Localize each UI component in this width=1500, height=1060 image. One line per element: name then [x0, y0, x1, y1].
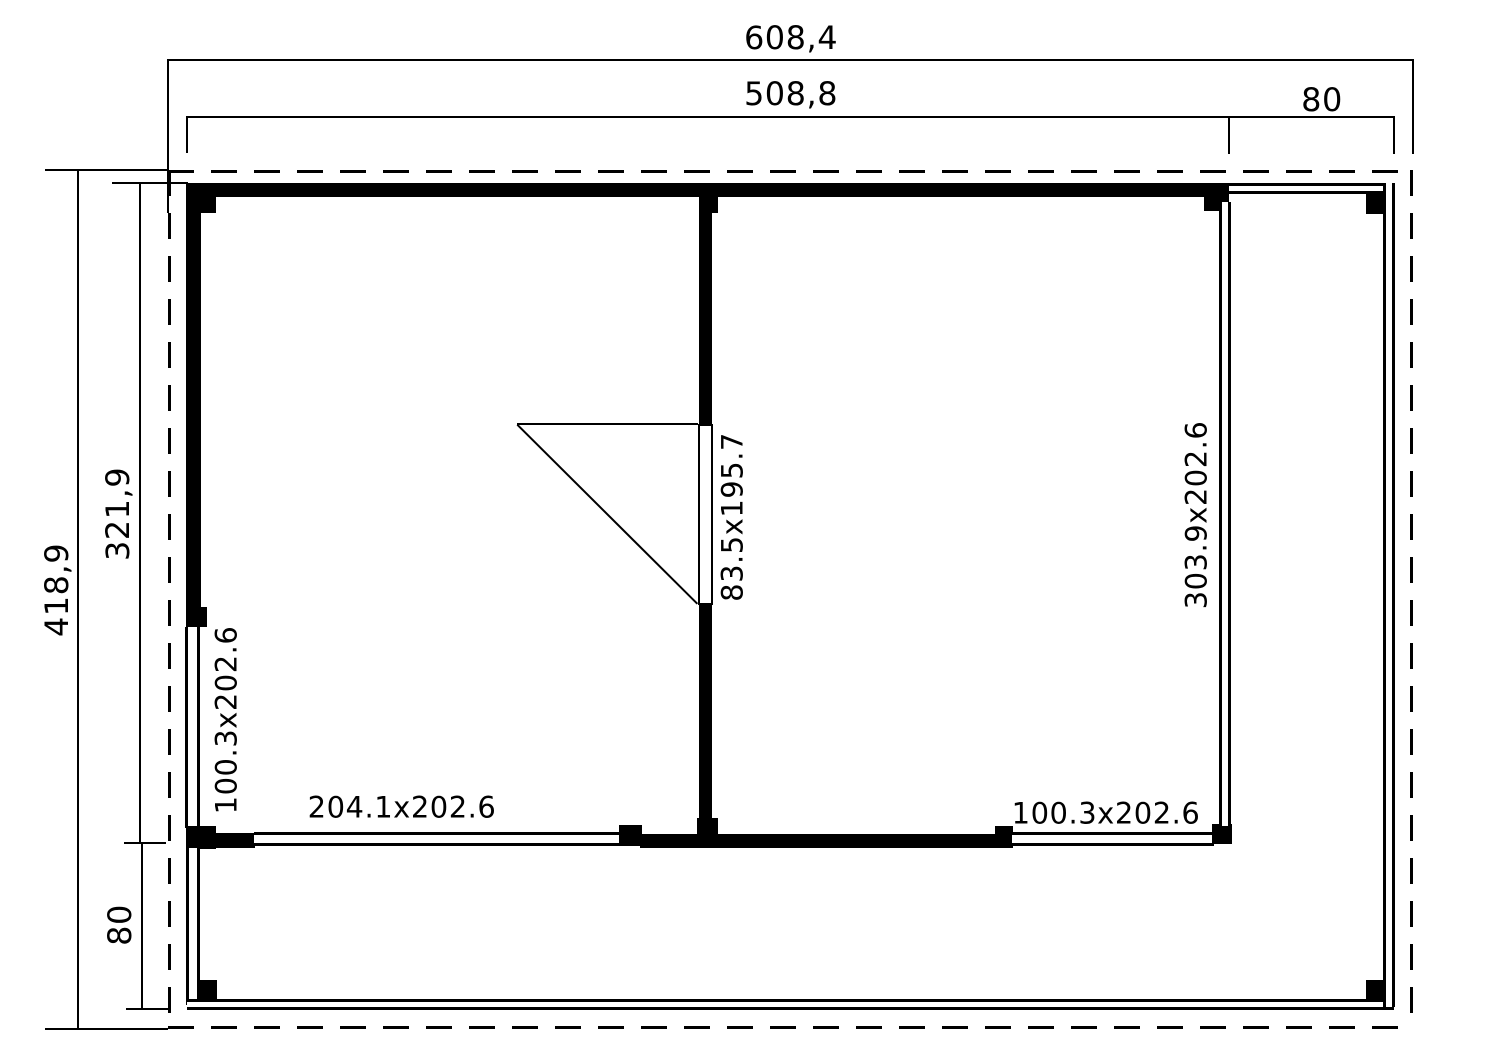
- dim-line-total-width: [168, 59, 1413, 61]
- wall-partition-lower: [699, 604, 712, 835]
- post-front-right-window-left: [995, 826, 1013, 844]
- dim-line-building-width: [187, 116, 1229, 118]
- dim-label-building-width: 508,8: [744, 78, 838, 110]
- dim-ext-side-canopy-right: [1393, 116, 1395, 154]
- dim-ext-total-depth-top: [45, 169, 168, 171]
- dim-label-side-canopy-width: 80: [1301, 84, 1343, 116]
- deck-edge-right: [1383, 183, 1395, 1007]
- dim-label-building-depth: 321,9: [102, 467, 134, 561]
- label-front-right-window-size: 100.3x202.6: [1012, 800, 1201, 829]
- roof-outline-right: [1410, 170, 1413, 1029]
- post-front-window-right: [619, 825, 642, 846]
- floor-plan-canvas: 608,4 508,8 80 418,9 321,9 80: [0, 0, 1500, 1060]
- window-front-right: [1012, 832, 1214, 846]
- wall-bottom-left-segment: [187, 833, 255, 848]
- post-left-window-top: [186, 607, 207, 627]
- dim-ext-building-depth-bottom: [124, 842, 166, 844]
- roof-outline-left: [168, 170, 171, 1029]
- window-front-left: [254, 832, 620, 846]
- door-leaf: [698, 424, 713, 605]
- post-canopy-top-right: [1366, 193, 1385, 214]
- label-door-size: 83.5x195.7: [719, 432, 748, 602]
- roof-outline-top: [168, 170, 1413, 173]
- roof-outline-bottom: [168, 1026, 1413, 1029]
- post-deck-bottom-right: [1366, 980, 1385, 1000]
- deck-edge-bottom: [187, 999, 1394, 1010]
- dim-ext-building-width-right: [1228, 116, 1230, 154]
- dim-label-veranda-depth: 80: [104, 904, 136, 946]
- dim-label-total-depth: 418,9: [41, 543, 73, 637]
- dim-ext-building-depth-top: [112, 182, 188, 184]
- wall-bottom-middle-segment: [640, 834, 1013, 848]
- post-bottom-right-corner: [1212, 824, 1232, 844]
- dim-label-total-width: 608,4: [744, 22, 838, 54]
- door-swing-diagonal: [517, 424, 698, 605]
- dim-ext-building-width-left: [186, 116, 188, 153]
- post-deck-bottom-left: [199, 980, 217, 1000]
- door-swing-top-line: [517, 423, 698, 425]
- window-left-wall: [185, 627, 200, 828]
- label-front-left-window-size: 204.1x202.6: [308, 794, 497, 823]
- label-right-wall-glazing-size: 303.9x202.6: [1183, 421, 1212, 610]
- glazing-right-wall: [1219, 202, 1231, 826]
- deck-edge-left: [186, 848, 200, 1005]
- dim-line-building-depth: [139, 183, 141, 843]
- wall-partition-upper: [699, 196, 712, 425]
- post-partition-bottom: [697, 818, 718, 835]
- dim-ext-veranda-depth-bottom: [126, 1008, 168, 1010]
- dim-ext-total-depth-bottom: [45, 1028, 168, 1030]
- label-left-wall-window-size: 100.3x202.6: [213, 626, 242, 815]
- wall-left: [186, 183, 201, 609]
- dim-line-veranda-depth: [141, 843, 143, 1009]
- dim-line-total-depth: [77, 170, 79, 1029]
- wall-top: [187, 183, 1229, 197]
- dim-ext-total-width-right: [1412, 59, 1414, 154]
